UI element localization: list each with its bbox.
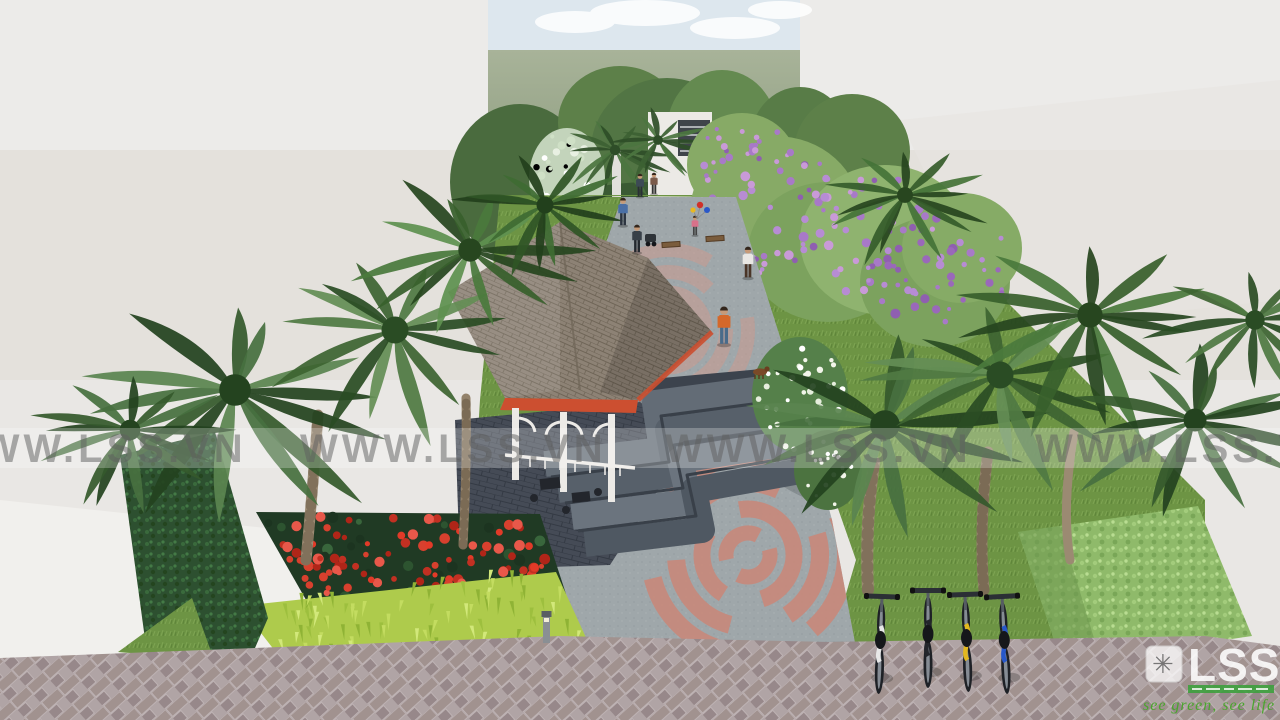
garden-render: WWW.LSS.VN WWW.LSS.VN WWW.LSS.VN WWW.LSS… bbox=[0, 0, 1280, 720]
watermark-band: WWW.LSS.VN WWW.LSS.VN WWW.LSS.VN WWW.LSS… bbox=[0, 427, 1280, 471]
bollard-light bbox=[542, 611, 552, 643]
flower-icon: ✳ bbox=[1152, 649, 1174, 679]
lss-logo: ✳ LSS see green, see life bbox=[1143, 639, 1280, 714]
watermark-text: WWW.LSS.VN bbox=[300, 427, 607, 471]
watermark-text: WWW.LSS.VN bbox=[1035, 427, 1280, 471]
watermark-text: WWW.LSS.VN bbox=[665, 427, 972, 471]
logo-text: LSS bbox=[1188, 639, 1280, 691]
sky bbox=[488, 0, 812, 54]
logo-tagline: see green, see life bbox=[1143, 697, 1275, 714]
watermark-text: WWW.LSS.VN bbox=[0, 427, 247, 471]
landscape-scene: WWW.LSS.VN WWW.LSS.VN WWW.LSS.VN WWW.LSS… bbox=[0, 0, 1280, 720]
